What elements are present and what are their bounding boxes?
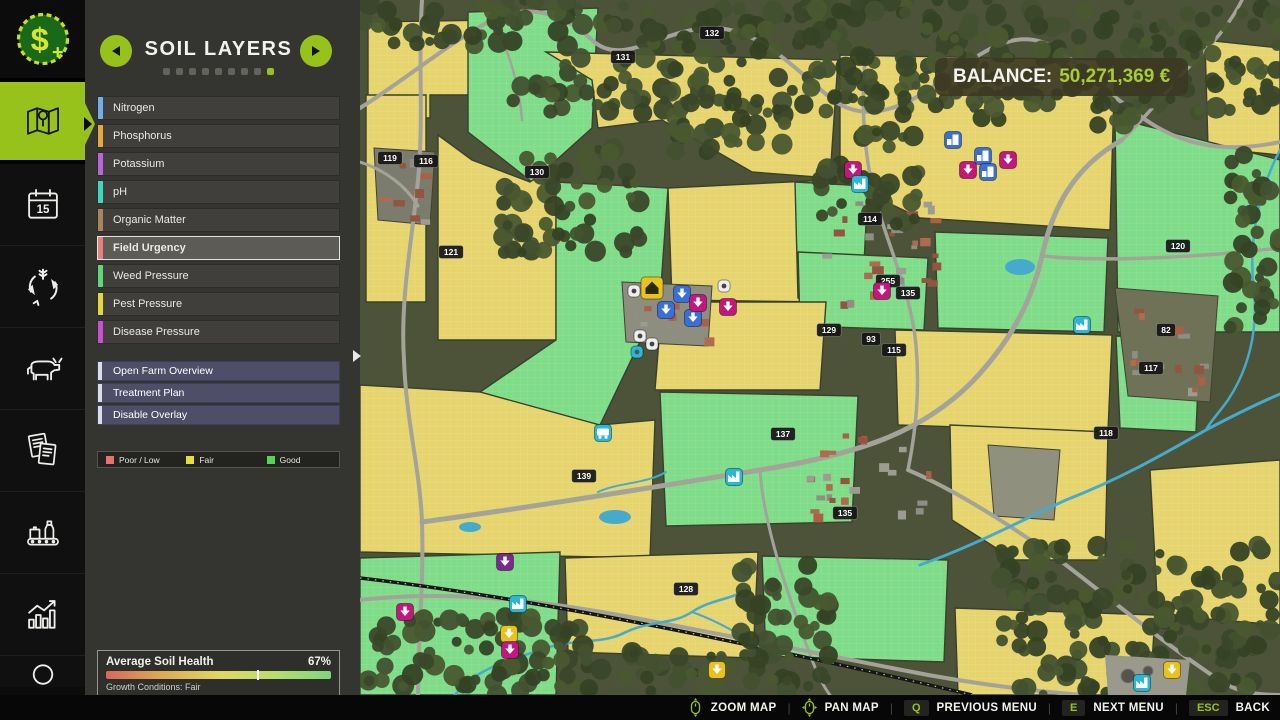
legend-item: Poor / Low: [98, 455, 178, 465]
tree: [1256, 265, 1265, 274]
action-label: Disable Overlay: [113, 409, 187, 421]
tree: [724, 93, 742, 111]
house: [896, 268, 906, 274]
tree: [880, 121, 900, 141]
field-number-badge[interactable]: 118: [1094, 427, 1119, 440]
tree: [1094, 95, 1111, 112]
tree: [1047, 584, 1067, 604]
sidebar-item-contracts[interactable]: [0, 410, 85, 492]
svg-text:132: 132: [705, 28, 719, 38]
tree: [1254, 299, 1271, 316]
house: [633, 308, 638, 317]
control-hint-previous-menu[interactable]: QPREVIOUS MENU: [904, 700, 1037, 716]
layer-item[interactable]: Phosphorus: [97, 124, 340, 148]
field-number-badge[interactable]: 116: [414, 155, 439, 168]
page-dot: [241, 68, 248, 75]
tree: [902, 166, 922, 186]
layer-item[interactable]: pH: [97, 180, 340, 204]
tree: [1201, 644, 1211, 654]
map-marker-magenta[interactable]: [1000, 152, 1017, 169]
tree: [1032, 40, 1051, 59]
tree: [1119, 537, 1136, 554]
tree: [794, 577, 812, 595]
tree: [544, 87, 560, 103]
map-marker-yellow[interactable]: [501, 626, 518, 643]
house: [1194, 366, 1204, 374]
house: [840, 301, 848, 308]
tree: [629, 649, 638, 658]
tree: [1185, 36, 1202, 53]
tree: [706, 652, 715, 661]
tree: [519, 151, 534, 166]
sidebar-item-player[interactable]: [0, 656, 85, 687]
field-number-badge[interactable]: 82: [1157, 324, 1176, 337]
house: [932, 263, 941, 271]
tree: [1026, 620, 1047, 641]
tree: [631, 230, 647, 246]
house: [842, 216, 847, 223]
tree: [626, 192, 636, 202]
map-marker-cyan[interactable]: [1074, 317, 1091, 334]
tree: [772, 134, 793, 155]
house: [1192, 387, 1197, 392]
tree: [987, 26, 1008, 47]
tree: [425, 37, 434, 46]
world-map[interactable]: 1191161321311301211142551351299311512082…: [360, 0, 1280, 695]
tree: [470, 675, 481, 686]
tree: [564, 201, 575, 212]
tree: [374, 673, 389, 688]
sidebar-item-animals[interactable]: [0, 328, 85, 410]
tree: [770, 8, 786, 24]
tree: [819, 646, 838, 665]
tree: [765, 578, 780, 593]
tree: [660, 96, 669, 105]
tree: [463, 26, 482, 45]
tree: [757, 21, 775, 39]
tree: [802, 78, 820, 96]
field-number-badge[interactable]: 131: [611, 51, 636, 64]
tree: [510, 190, 532, 212]
tree: [705, 118, 721, 134]
page-dot: [163, 68, 170, 75]
tree: [822, 55, 832, 65]
tree: [1266, 608, 1280, 622]
layer-item[interactable]: Disease Pressure: [97, 320, 340, 344]
house: [421, 173, 433, 179]
field-number-badge[interactable]: 117: [1139, 362, 1164, 375]
map-marker-white[interactable]: [718, 280, 730, 292]
field-number-badge[interactable]: 130: [525, 166, 550, 179]
soil-health-value: 67%: [308, 656, 331, 668]
layer-label: Weed Pressure: [113, 270, 189, 282]
layer-label: Pest Pressure: [113, 298, 182, 310]
field-number-badge[interactable]: 132: [700, 27, 725, 40]
tree: [526, 672, 535, 681]
house: [930, 218, 941, 223]
layer-item[interactable]: Organic Matter: [97, 208, 340, 232]
house: [926, 471, 931, 479]
house: [415, 189, 424, 198]
tree: [794, 8, 809, 23]
layer-item[interactable]: Potassium: [97, 152, 340, 176]
layer-color-bar: [98, 125, 103, 147]
action-button[interactable]: Treatment Plan: [97, 383, 340, 403]
field-number-badge[interactable]: 120: [1166, 240, 1191, 253]
tree: [409, 36, 424, 51]
legend-swatch: [106, 456, 114, 464]
tree: [817, 158, 837, 178]
tree: [985, 9, 1002, 26]
tree: [894, 106, 911, 123]
tree: [376, 658, 393, 675]
layer-item[interactable]: Weed Pressure: [97, 264, 340, 288]
map-marker-yellow[interactable]: [1164, 662, 1181, 679]
tree: [441, 24, 462, 45]
production-icon: [21, 511, 65, 555]
tree: [1226, 69, 1238, 81]
tree: [1123, 584, 1132, 593]
svg-text:128: 128: [679, 584, 693, 594]
tree: [1247, 18, 1260, 31]
svg-text:115: 115: [887, 345, 901, 355]
tree: [413, 652, 428, 667]
tree: [736, 57, 746, 67]
map-marker-blue[interactable]: [975, 148, 992, 165]
map-marker-magenta[interactable]: [690, 295, 707, 312]
tree: [642, 5, 655, 18]
divider: |: [787, 701, 790, 715]
soil-health-title: Average Soil Health: [106, 656, 214, 668]
field-number-badge[interactable]: 135: [896, 287, 921, 300]
sidebar-item-map[interactable]: [0, 82, 85, 164]
tree: [581, 160, 601, 180]
tree: [872, 186, 891, 205]
next-layer-button[interactable]: [300, 35, 332, 67]
pond: [1005, 259, 1035, 275]
map-marker-magenta[interactable]: [397, 604, 414, 621]
control-hint-pan-map[interactable]: PAN MAP: [802, 698, 879, 717]
tree: [600, 143, 619, 162]
map-marker-white[interactable]: [628, 285, 640, 297]
map-icon: [21, 99, 65, 143]
map-marker-blue[interactable]: [945, 132, 962, 149]
map-marker-yellow[interactable]: [709, 662, 726, 679]
tree: [1069, 641, 1087, 659]
tree: [952, 45, 964, 57]
tree: [1220, 22, 1231, 33]
tree: [643, 21, 664, 42]
map-canvas: 1191161321311301211142551351299311512082…: [360, 0, 1280, 695]
tree: [1154, 607, 1175, 628]
layer-color-bar: [98, 265, 103, 287]
tree: [1121, 570, 1131, 580]
tree: [910, 189, 923, 202]
tree: [425, 2, 444, 21]
svg-text:119: 119: [383, 153, 397, 163]
tree: [668, 672, 685, 689]
key-badge: ESC: [1189, 700, 1228, 716]
tree: [581, 656, 592, 667]
divider: |: [1048, 701, 1051, 715]
tree: [1251, 226, 1264, 239]
svg-text:130: 130: [530, 167, 544, 177]
tree: [693, 67, 709, 83]
action-label: Treatment Plan: [113, 387, 184, 399]
chevron-right-icon: [312, 46, 320, 56]
tree: [1237, 205, 1248, 216]
tree: [1079, 589, 1093, 603]
svg-text:121: 121: [444, 247, 458, 257]
map-marker-white[interactable]: [634, 330, 646, 342]
tree: [903, 126, 924, 147]
map-marker-magenta[interactable]: [960, 162, 977, 179]
tree: [1255, 273, 1264, 282]
tree: [864, 94, 885, 115]
tree: [1236, 620, 1253, 637]
map-marker-magenta[interactable]: [720, 299, 737, 316]
tree: [767, 42, 783, 58]
page-dot: [267, 68, 274, 75]
control-hint-back[interactable]: ESCBACK: [1189, 700, 1270, 716]
tree: [1030, 17, 1048, 35]
map-marker-cyan[interactable]: [510, 596, 527, 613]
field-number-badge[interactable]: 139: [572, 470, 597, 483]
sidebar-item-finances[interactable]: $ +: [0, 0, 85, 82]
tree: [1256, 583, 1266, 593]
soil-health-marker: [257, 670, 259, 680]
house: [807, 476, 814, 482]
tree: [753, 37, 769, 53]
sidebar-item-production[interactable]: [0, 492, 85, 574]
tree: [1155, 549, 1164, 558]
stats-icon: [21, 593, 65, 637]
tree: [716, 651, 726, 661]
legend-label: Good: [280, 455, 301, 465]
svg-text:114: 114: [863, 214, 877, 224]
page-dot: [189, 68, 196, 75]
action-button[interactable]: Open Farm Overview: [97, 361, 340, 381]
svg-text:131: 131: [616, 52, 630, 62]
map-marker-cyan[interactable]: [631, 346, 643, 358]
map-marker-purple[interactable]: [497, 554, 514, 571]
house: [816, 495, 825, 500]
house: [823, 474, 831, 481]
map-marker-blue[interactable]: [980, 164, 997, 181]
tree: [1193, 610, 1207, 624]
house: [1175, 365, 1181, 373]
tree: [1026, 577, 1039, 590]
field-number-badge[interactable]: 93: [862, 333, 881, 346]
map-marker-magenta[interactable]: [502, 642, 519, 659]
layer-item[interactable]: Pest Pressure: [97, 292, 340, 316]
sidebar-item-statistics[interactable]: [0, 574, 85, 656]
tree: [572, 14, 593, 35]
tree: [740, 115, 752, 127]
field-number-badge[interactable]: 135: [833, 507, 858, 520]
map-marker-cyan[interactable]: [726, 469, 743, 486]
tree: [539, 217, 553, 231]
tree: [528, 82, 541, 95]
sidebar-item-calendar[interactable]: 15: [0, 164, 85, 246]
tree: [514, 223, 533, 242]
legend-label: Poor / Low: [119, 455, 160, 465]
soil-health-panel: Average Soil Health 67% Growth Condition…: [97, 650, 340, 697]
tree: [1089, 116, 1106, 133]
map-marker-yellow[interactable]: [641, 277, 663, 299]
tree: [1166, 27, 1176, 37]
house: [872, 266, 884, 274]
soil-layers-panel: SOIL LAYERS NitrogenPhosphorusPotassiump…: [85, 0, 360, 695]
tree: [1260, 181, 1280, 201]
control-hint-next-menu[interactable]: ENEXT MENU: [1062, 700, 1164, 716]
key-badge: E: [1062, 700, 1085, 716]
map-marker-white[interactable]: [646, 338, 658, 350]
tree: [1053, 666, 1063, 676]
tree: [504, 14, 517, 27]
house: [855, 201, 863, 205]
tree: [571, 177, 583, 189]
tree: [899, 7, 911, 19]
house: [641, 322, 648, 326]
tree: [1178, 636, 1199, 657]
sidebar-item-crop-rotation[interactable]: [0, 246, 85, 328]
map-marker-cyan[interactable]: [1134, 675, 1151, 692]
tree: [819, 592, 838, 611]
house: [879, 463, 889, 472]
tree: [802, 27, 820, 45]
map-marker-blue[interactable]: [685, 310, 702, 327]
tree: [1028, 553, 1049, 574]
tree: [488, 31, 510, 53]
layer-color-bar: [98, 97, 103, 119]
tree: [483, 621, 498, 636]
house: [865, 233, 874, 240]
tree: [1163, 630, 1177, 644]
map-marker-cyan[interactable]: [595, 425, 612, 442]
tree: [1153, 101, 1165, 113]
layer-item[interactable]: Nitrogen: [97, 96, 340, 120]
map-marker-blue[interactable]: [674, 286, 691, 303]
field-good[interactable]: [660, 392, 858, 526]
tree: [1224, 321, 1237, 334]
tree: [377, 616, 396, 635]
tree: [544, 196, 564, 216]
treatment-tank: [1121, 669, 1135, 683]
tree: [767, 674, 779, 686]
tree: [1125, 641, 1140, 656]
tree: [1246, 57, 1264, 75]
tree: [1194, 106, 1204, 116]
map-marker-cyan[interactable]: [852, 176, 869, 193]
tree: [542, 657, 555, 670]
house: [410, 215, 420, 221]
tree: [693, 44, 714, 65]
tree: [1008, 620, 1018, 630]
field-number-badge[interactable]: 121: [439, 246, 464, 259]
tree: [724, 75, 736, 87]
field-number-badge[interactable]: 128: [674, 583, 699, 596]
tree: [812, 65, 826, 79]
map-marker-magenta[interactable]: [874, 283, 891, 300]
control-label: PAN MAP: [825, 702, 879, 714]
action-color-bar: [98, 384, 102, 402]
tree: [872, 128, 881, 137]
field-number-badge[interactable]: 137: [771, 428, 796, 441]
panel-expand-arrow-icon[interactable]: [353, 350, 361, 362]
tree: [657, 658, 670, 671]
map-marker-blue[interactable]: [658, 302, 675, 319]
house: [421, 219, 430, 225]
growth-conditions-label: Growth Conditions: Fair: [106, 682, 331, 692]
field-number-badge[interactable]: 129: [817, 324, 842, 337]
tree: [883, 140, 896, 153]
tree: [726, 44, 736, 54]
tree: [1204, 45, 1221, 62]
house: [912, 241, 918, 246]
tree: [1133, 10, 1143, 20]
tree: [1250, 637, 1267, 654]
tree: [856, 125, 876, 145]
game-screen: 1191161321311301211142551351299311512082…: [0, 0, 1280, 720]
house: [843, 433, 850, 438]
house: [829, 498, 835, 503]
tree: [733, 3, 746, 16]
panel-header: SOIL LAYERS: [97, 0, 340, 68]
layer-label: Field Urgency: [113, 242, 186, 254]
tree: [669, 647, 688, 666]
layer-label: pH: [113, 186, 127, 198]
tree: [890, 217, 903, 230]
action-button[interactable]: Disable Overlay: [97, 405, 340, 425]
control-hint-zoom-map[interactable]: ZOOM MAP: [688, 698, 777, 717]
divider: |: [1175, 701, 1178, 715]
tree: [741, 631, 759, 649]
layer-item[interactable]: Field Urgency: [97, 236, 340, 260]
action-color-bar: [98, 406, 102, 424]
layer-color-bar: [98, 153, 103, 175]
active-tab-arrow-icon: [84, 117, 92, 131]
field-number-badge[interactable]: 119: [378, 152, 403, 165]
tree: [578, 192, 595, 209]
tree: [812, 667, 828, 683]
page-dot: [176, 68, 183, 75]
tree: [385, 635, 401, 651]
field-number-badge[interactable]: 114: [858, 213, 883, 226]
tree: [1092, 588, 1114, 610]
tree: [493, 227, 513, 247]
tree: [592, 99, 603, 110]
tree: [743, 672, 761, 690]
svg-text:82: 82: [1161, 325, 1171, 335]
tree: [1241, 241, 1258, 258]
svg-text:116: 116: [419, 156, 433, 166]
tree: [559, 625, 573, 639]
action-list: Open Farm OverviewTreatment PlanDisable …: [97, 361, 340, 425]
layer-color-bar: [98, 181, 103, 203]
tree: [1221, 638, 1233, 650]
tree: [1211, 5, 1223, 17]
tree: [517, 247, 527, 257]
tree: [439, 609, 460, 630]
key-badge: Q: [904, 700, 929, 716]
tree: [633, 104, 652, 123]
field-number-badge[interactable]: 115: [882, 344, 907, 357]
tree: [1054, 539, 1071, 556]
tree: [783, 676, 793, 686]
tree: [544, 619, 561, 636]
soil-health-bar: [106, 671, 331, 679]
